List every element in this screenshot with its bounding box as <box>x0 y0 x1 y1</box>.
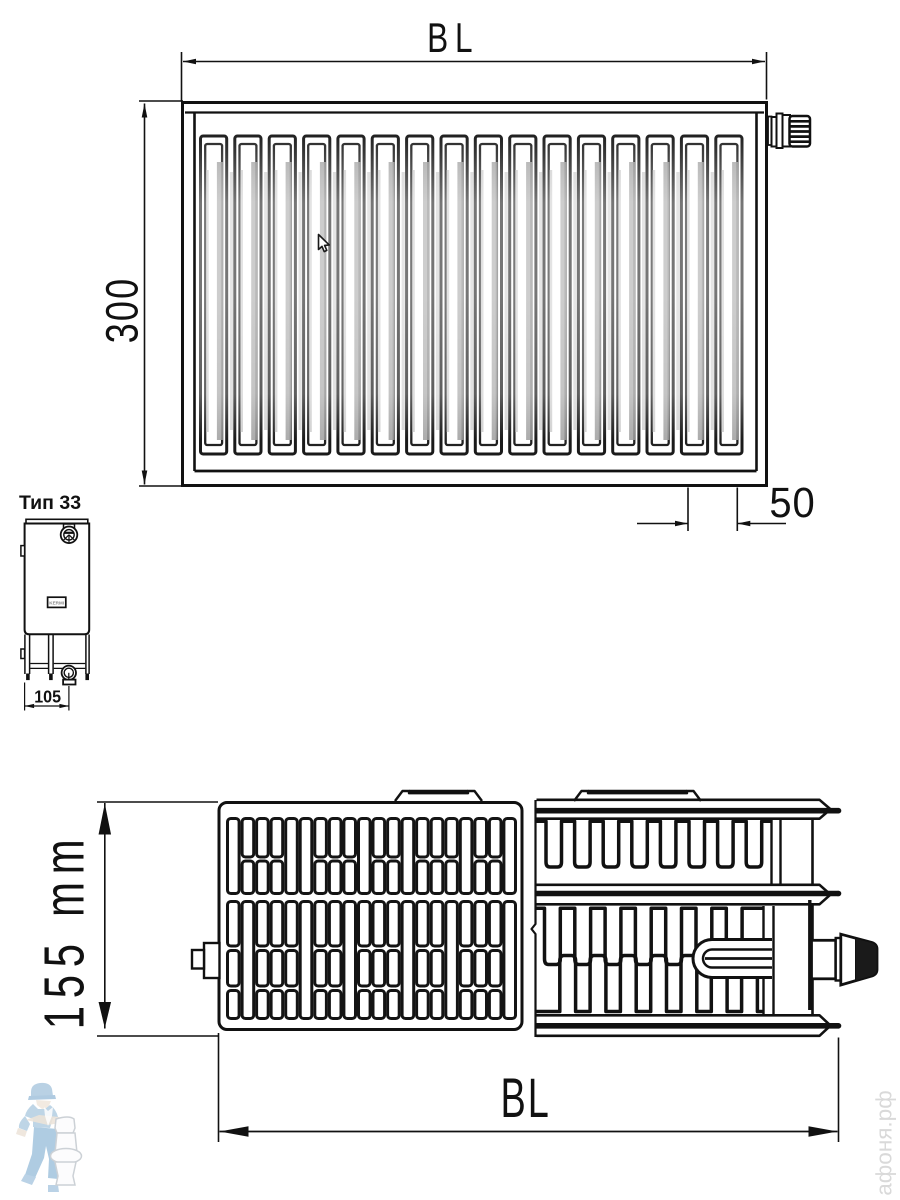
svg-text:Тип 33: Тип 33 <box>19 492 81 514</box>
svg-text:BL: BL <box>501 1068 551 1130</box>
svg-text:300: 300 <box>96 277 147 344</box>
svg-text:105: 105 <box>34 687 61 707</box>
svg-text:афоня.рф: афоня.рф <box>872 1090 897 1195</box>
svg-text:KERMI: KERMI <box>49 601 64 606</box>
svg-text:BL: BL <box>427 15 479 61</box>
svg-text:155 mm: 155 mm <box>32 832 96 1030</box>
svg-text:50: 50 <box>769 478 815 527</box>
